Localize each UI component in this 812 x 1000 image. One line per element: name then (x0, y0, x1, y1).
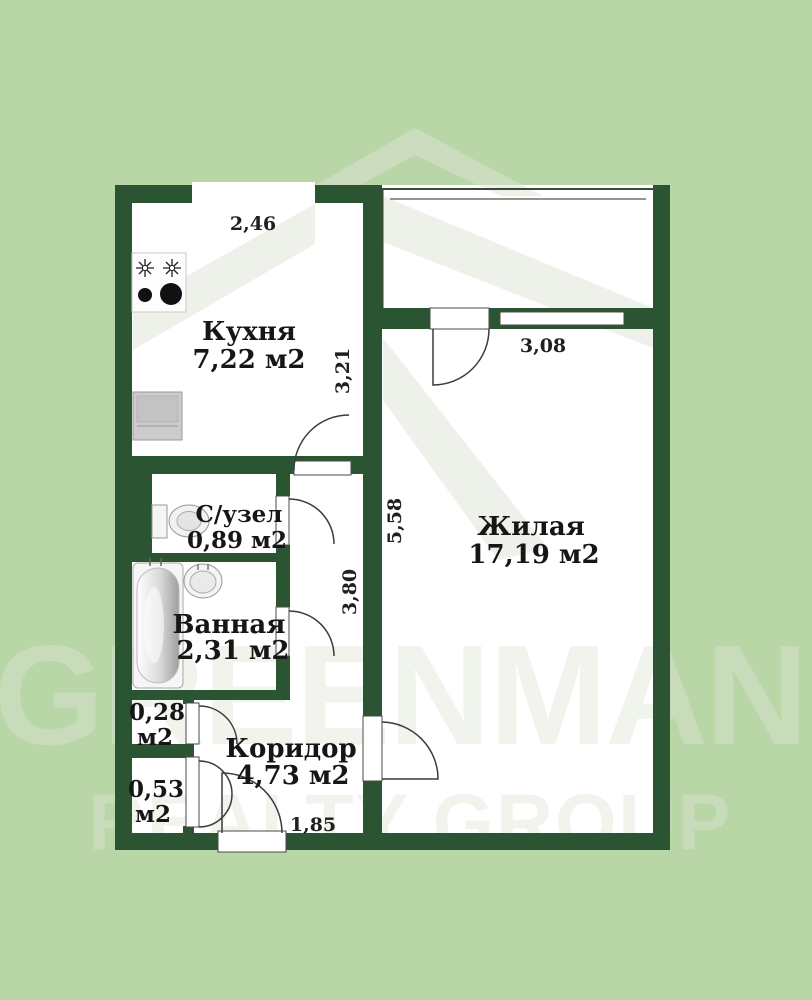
dim-corridor-width: 1,85 (290, 814, 336, 836)
kitchen-sink-icon (133, 392, 182, 440)
closet-small-unit: м2 (137, 724, 173, 751)
bath-door-swing (289, 611, 334, 656)
kitchen-door-leaf (294, 461, 351, 475)
wall-bottom (115, 833, 670, 850)
bath-sink-icon (184, 564, 222, 598)
closet-small-door-leaf (186, 703, 199, 744)
wall-living-left-lower (363, 781, 382, 833)
toilet-name: С/узел (196, 501, 283, 528)
living-name: Жилая (477, 512, 585, 542)
kitchen-name: Кухня (202, 317, 296, 347)
kitchen-window (192, 182, 315, 204)
toilet-area: 0,89 м2 (187, 527, 287, 554)
closet-small-name: 0,28 (129, 699, 185, 726)
dim-living-width: 3,08 (520, 335, 566, 357)
bathroom-area: 2,31 м2 (176, 636, 289, 666)
plan-layer: Кухня 7,22 м2 С/узел 0,89 м2 Ванная 2,31… (0, 0, 812, 1000)
dim-kitchen-height: 3,21 (332, 348, 354, 394)
wall-wetrooms-right-b (276, 545, 290, 607)
closet-large-unit: м2 (135, 801, 171, 828)
closet-large-door-swing (199, 761, 232, 827)
wall-toilet-bath-divider (131, 553, 276, 562)
corridor-name: Коридор (225, 734, 356, 764)
corridor-area: 4,73 м2 (236, 761, 349, 791)
wall-right (653, 185, 670, 850)
balcony-door-leaf (430, 308, 489, 329)
wall-living-left-upper (363, 203, 382, 716)
entrance-door-leaf (218, 831, 286, 852)
floor-plan-page: GREENMAN REALTY GROUP (0, 0, 812, 1000)
dim-corridor-height: 3,80 (339, 569, 361, 615)
wall-wetrooms-right-a (276, 474, 290, 496)
living-balcony-window (500, 312, 624, 325)
duct-block (131, 474, 152, 553)
balcony (383, 189, 654, 310)
balcony-door-swing (433, 329, 489, 385)
balcony-outline (383, 189, 654, 310)
living-door-swing (382, 722, 438, 779)
dim-living-height: 5,58 (384, 498, 406, 544)
closet-large-door-leaf (186, 757, 199, 827)
closet-large-name: 0,53 (128, 776, 184, 803)
wall-left (115, 185, 132, 850)
toilet-door-swing (289, 499, 334, 544)
living-area: 17,19 м2 (468, 540, 599, 570)
living-door-leaf (363, 716, 382, 781)
stove-icon (132, 253, 186, 312)
dim-kitchen-width: 2,46 (230, 213, 276, 235)
kitchen-area: 7,22 м2 (192, 345, 305, 375)
